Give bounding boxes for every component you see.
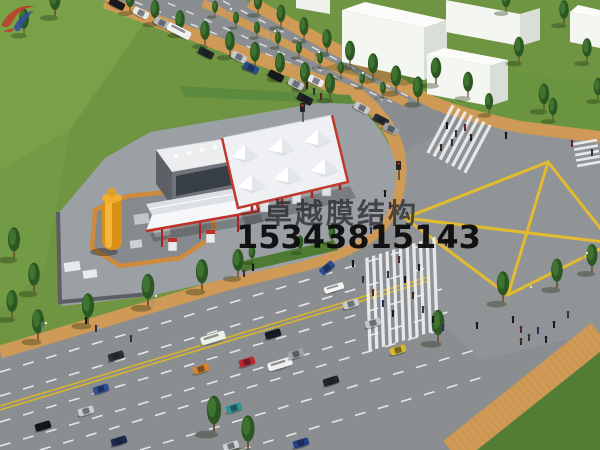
pedestrian xyxy=(387,271,390,278)
pedestrian xyxy=(313,88,316,95)
pedestrian xyxy=(418,264,421,271)
pedestrian xyxy=(505,132,508,139)
pedestrian xyxy=(451,139,454,146)
pedestrian xyxy=(528,334,531,341)
pedestrian xyxy=(591,149,594,156)
watermark-phone-number: 15343815143 xyxy=(236,218,481,256)
rendering-stage: 卓越膜结构 15343815143 xyxy=(0,0,600,450)
pedestrian xyxy=(372,289,375,296)
pedestrian xyxy=(553,321,556,328)
pedestrian xyxy=(476,322,479,329)
pedestrian xyxy=(440,144,443,151)
pedestrian xyxy=(455,130,458,137)
pedestrian xyxy=(412,292,415,299)
pedestrian xyxy=(352,260,355,267)
pedestrian xyxy=(320,93,323,100)
pedestrian xyxy=(464,124,467,131)
pedestrian xyxy=(545,336,548,343)
pedestrian xyxy=(362,276,365,283)
pedestrian xyxy=(512,316,515,323)
pedestrian xyxy=(520,326,523,333)
pedestrian xyxy=(422,306,425,313)
pedestrian xyxy=(252,264,255,271)
pedestrian xyxy=(382,300,385,307)
pedestrian xyxy=(567,311,570,318)
pedestrian xyxy=(392,310,395,317)
pedestrian xyxy=(537,327,540,334)
pedestrian xyxy=(243,270,246,277)
pedestrian xyxy=(432,316,435,323)
watermark-logo-icon xyxy=(0,0,38,40)
pedestrian xyxy=(85,317,88,324)
pedestrian xyxy=(470,134,473,141)
pedestrian xyxy=(404,276,407,283)
pedestrian xyxy=(130,335,133,342)
pedestrian xyxy=(446,122,449,129)
pedestrian xyxy=(306,82,309,89)
pedestrian xyxy=(95,325,98,332)
pedestrian xyxy=(442,324,445,331)
pedestrian xyxy=(571,140,574,147)
pedestrian xyxy=(520,338,523,345)
pedestrian xyxy=(398,256,401,263)
